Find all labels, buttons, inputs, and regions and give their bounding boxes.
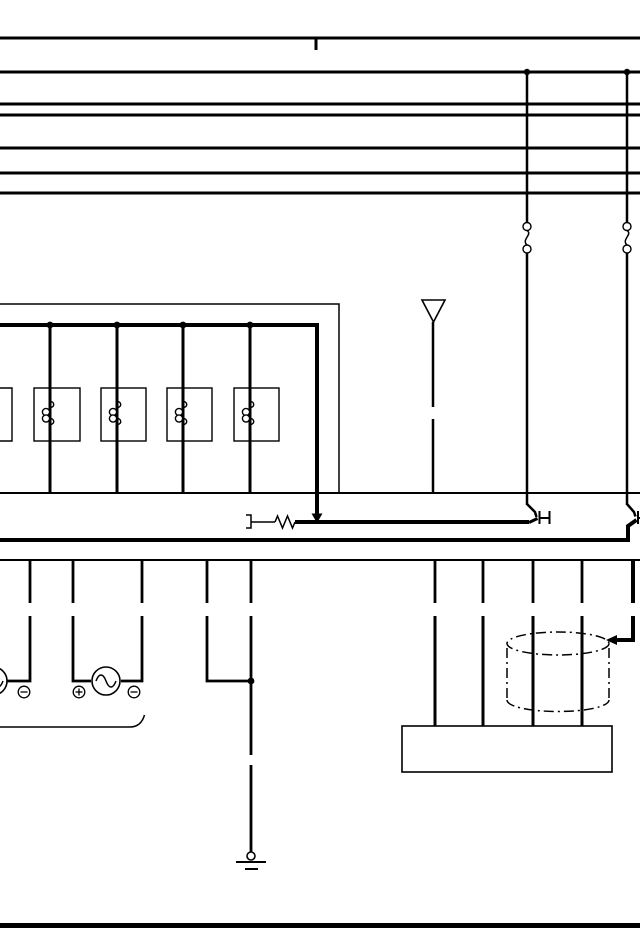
inline-connector-ring (523, 245, 531, 253)
drop-wire-right-jog (627, 504, 636, 517)
thick-wire-run-jog (529, 519, 538, 523)
resistor-zigzag (275, 516, 295, 528)
coil-symbol-loop (109, 415, 116, 422)
component-box (402, 726, 612, 772)
ac-source-partial (0, 667, 7, 695)
coil-symbol-loop (242, 415, 249, 422)
sensor-wire (7, 616, 30, 681)
drop-wire-left-jog (527, 504, 537, 517)
relay-box-partial (0, 388, 12, 441)
ground-eyelet (247, 852, 255, 860)
inline-connector-ring (523, 223, 531, 231)
inline-connector-ring (623, 223, 631, 231)
wire-arrow-left (606, 635, 617, 645)
shield-drain-wire (610, 616, 633, 640)
junction-dot (248, 678, 255, 685)
inline-connector-squiggle (625, 231, 628, 246)
relay-box (101, 388, 146, 441)
sensor-wire (121, 616, 142, 681)
antenna-symbol (422, 300, 445, 322)
shield-cylinder-bottom (507, 700, 609, 712)
sensor-housing-curve (0, 715, 145, 727)
inline-connector-squiggle (525, 231, 528, 246)
relay-box (234, 388, 279, 441)
relay-box (34, 388, 80, 441)
coil-symbol-loop (175, 415, 182, 422)
wiring-diagram-page (0, 0, 640, 950)
sensor-wire (207, 616, 251, 681)
sensor-wire (73, 616, 91, 681)
relay-box (167, 388, 212, 441)
shield-cylinder-top (507, 632, 609, 655)
wiring-diagram (0, 0, 640, 950)
resistor-terminal-bracket (246, 515, 251, 528)
inline-connector-ring (623, 245, 631, 253)
coil-symbol-loop (42, 415, 49, 422)
